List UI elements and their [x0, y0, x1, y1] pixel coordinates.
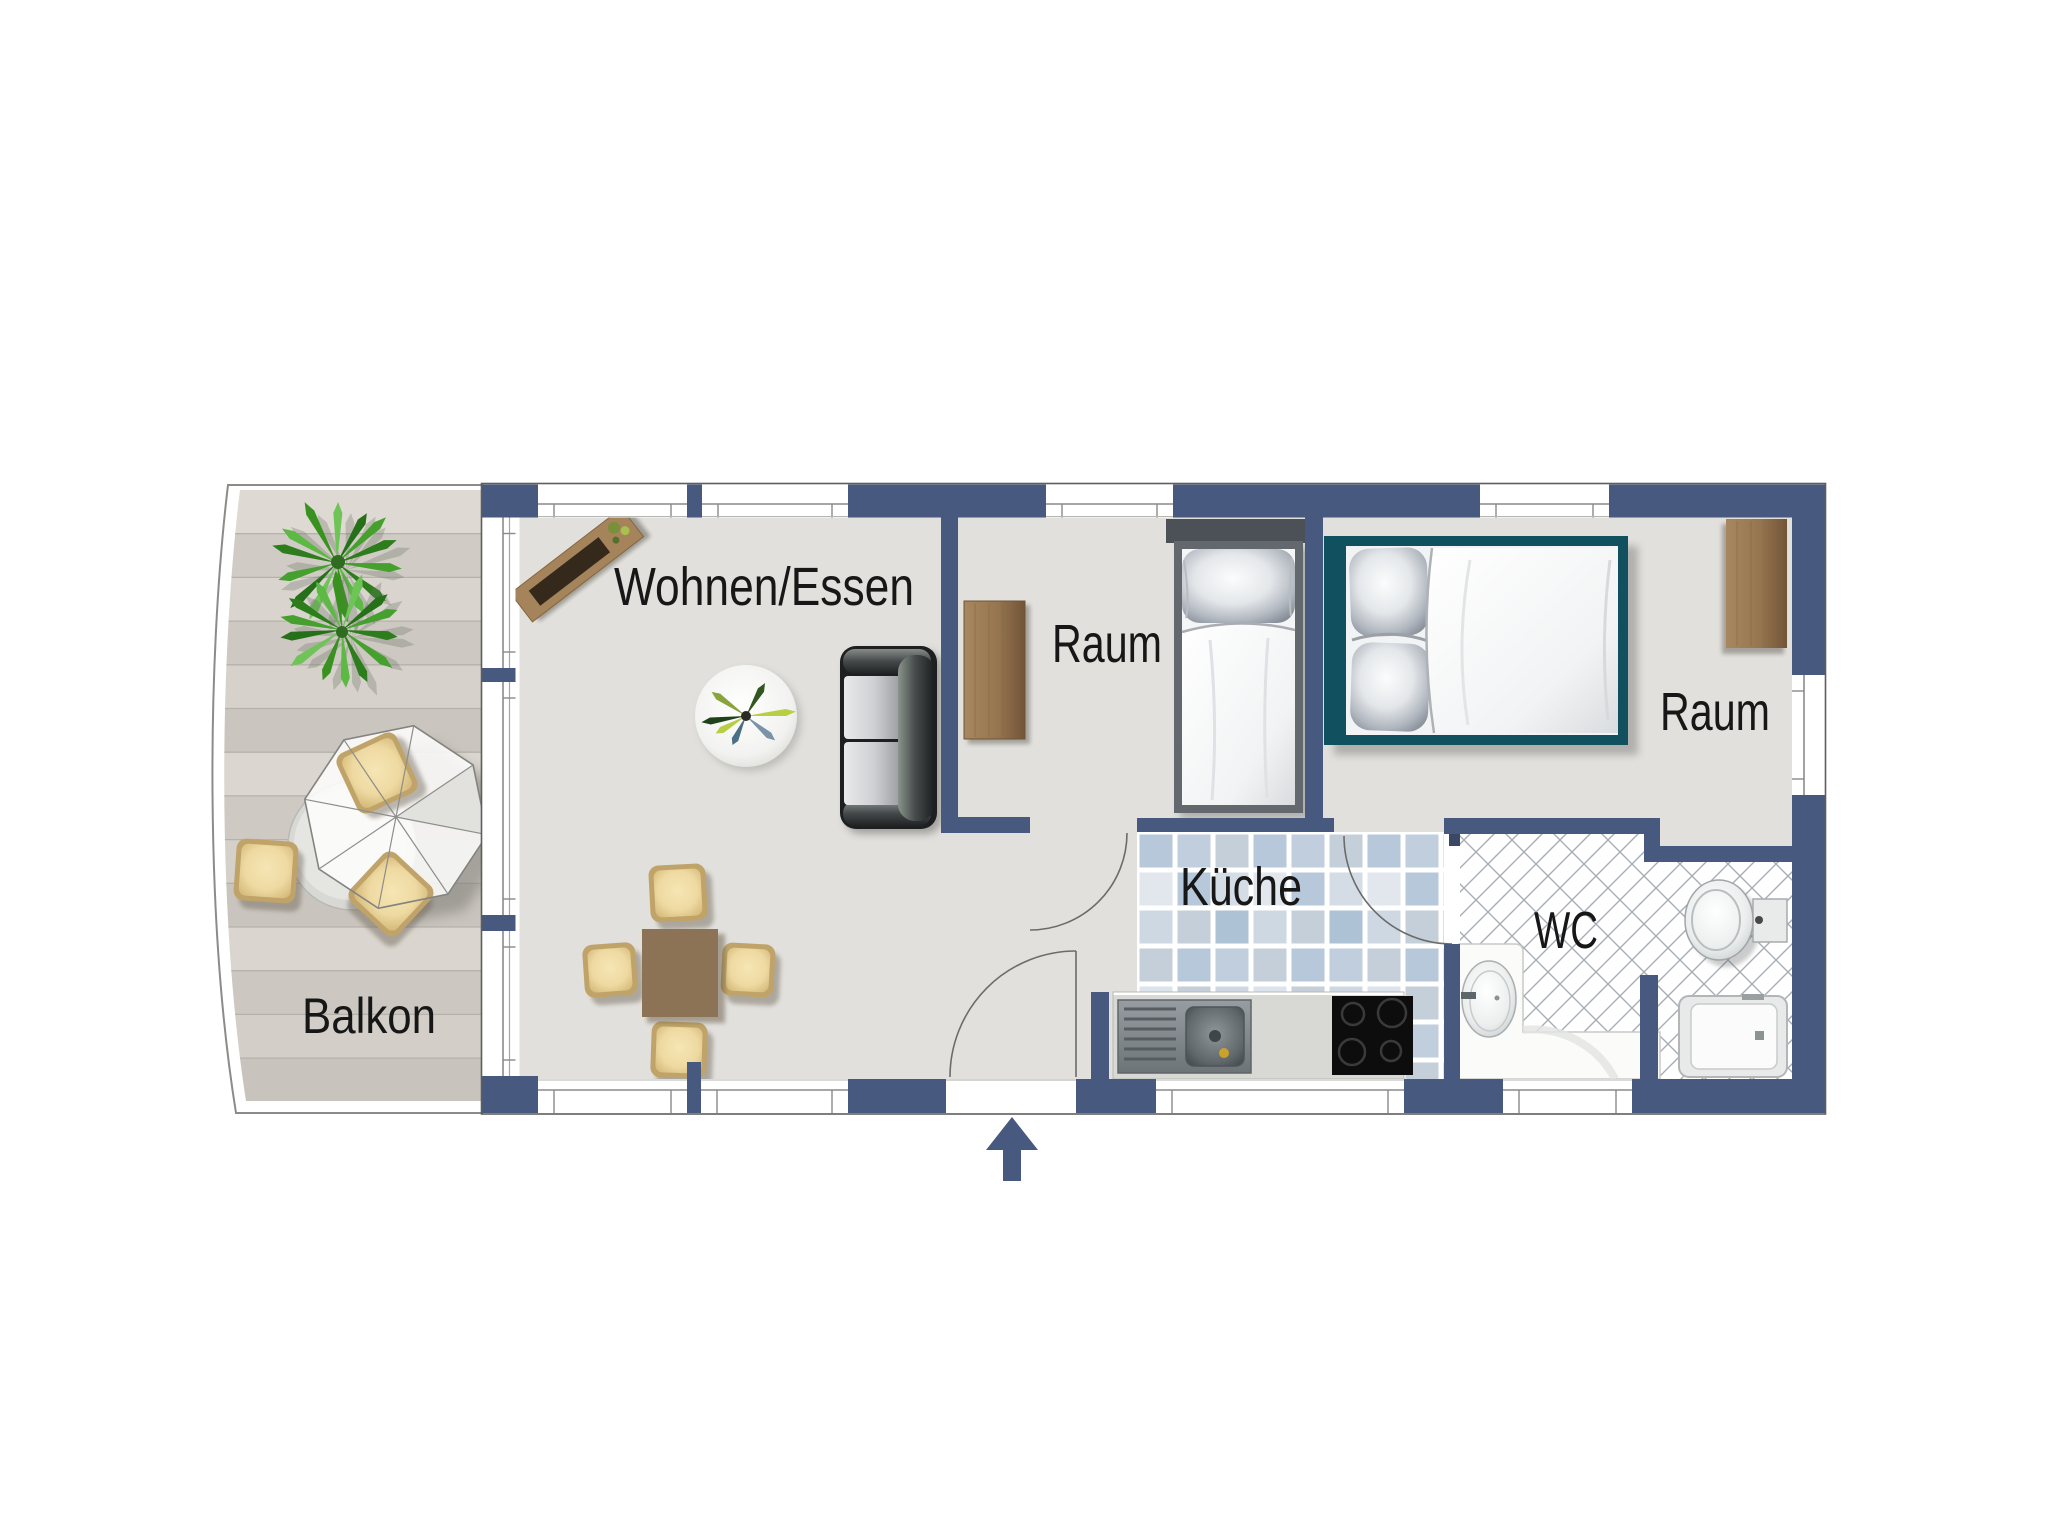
svg-text:Wohnen/Essen: Wohnen/Essen — [614, 557, 914, 617]
svg-text:WC: WC — [1534, 902, 1598, 960]
svg-text:Balkon: Balkon — [302, 988, 436, 1044]
svg-text:Raum: Raum — [1660, 682, 1770, 742]
svg-text:Raum: Raum — [1052, 614, 1162, 674]
svg-text:Küche: Küche — [1180, 857, 1302, 917]
